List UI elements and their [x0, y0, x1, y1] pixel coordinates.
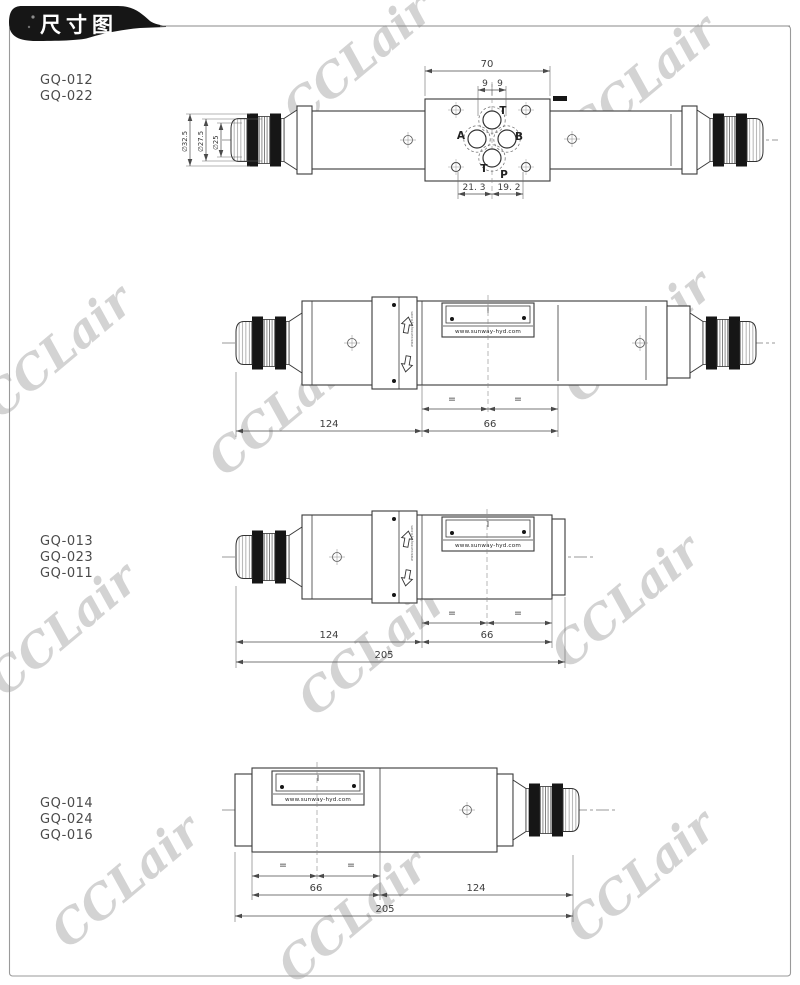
- dim-66: 66: [484, 419, 497, 430]
- dim-dia-32-5: ∅32.5: [181, 131, 189, 152]
- end-cap-right: [667, 306, 690, 378]
- adjust-knob-right: [690, 313, 756, 373]
- equal-mark: =: [279, 860, 287, 871]
- catalog-page: CCLair CCLair CCLair CCLair CCLair CCLai…: [0, 0, 800, 985]
- dim-205: 205: [374, 650, 393, 661]
- dim-dia-25: ∅25: [212, 135, 220, 150]
- nameplate-url: www.sunway-hyd.com: [285, 797, 351, 803]
- port-label-T2: T: [480, 163, 488, 175]
- model-label: GQ-013: [40, 534, 93, 549]
- equal-mark: =: [448, 394, 456, 405]
- banner-noise: [31, 15, 34, 18]
- dim-124: 124: [319, 419, 338, 430]
- dim-124: 124: [319, 630, 338, 641]
- port-label-A: A: [457, 130, 466, 142]
- dim-9-right: 9: [497, 79, 503, 89]
- dim-19-2: 19. 2: [498, 183, 521, 193]
- rivet: [392, 517, 396, 521]
- model-label: GQ-012: [40, 73, 93, 88]
- dim-70: 70: [481, 59, 494, 70]
- rivet: [392, 303, 396, 307]
- flow-plate-text: www.sunway-hyd.com: [410, 311, 414, 347]
- adjust-knob-left: [236, 313, 302, 373]
- end-cap-right: [497, 774, 513, 846]
- rivet: [450, 317, 454, 321]
- dim-124: 124: [466, 883, 485, 894]
- rivet: [522, 316, 526, 320]
- end-step-left: [297, 106, 312, 174]
- equal-mark: =: [514, 608, 522, 619]
- end-cap-left: [235, 774, 252, 846]
- port-label-P: P: [500, 169, 508, 181]
- dim-9-left: 9: [482, 79, 488, 89]
- nameplate-url: www.sunway-hyd.com: [455, 543, 521, 549]
- page-title: 尺寸图: [40, 13, 118, 37]
- dim-66: 66: [481, 630, 494, 641]
- dim-21-3: 21. 3: [463, 183, 486, 193]
- model-label: GQ-024: [40, 812, 93, 827]
- adjust-knob-left: [236, 527, 302, 587]
- end-cap-right: [552, 519, 565, 595]
- banner-noise: [28, 26, 30, 28]
- rivet: [522, 530, 526, 534]
- dim-dia-27-5: ∅27.5: [197, 131, 205, 152]
- rivet: [280, 785, 284, 789]
- model-label: GQ-022: [40, 89, 93, 104]
- model-label: GQ-023: [40, 550, 93, 565]
- rivet: [352, 784, 356, 788]
- model-label: GQ-014: [40, 796, 93, 811]
- port-label-B: B: [515, 131, 523, 143]
- dim-205: 205: [375, 904, 394, 915]
- rivet: [392, 379, 396, 383]
- end-step-right: [682, 106, 697, 174]
- flow-plate-text: www.sunway-hyd.com: [410, 525, 414, 561]
- equal-mark: =: [514, 394, 522, 405]
- adjust-knob-right: [697, 110, 763, 170]
- model-label: GQ-011: [40, 566, 93, 581]
- equal-mark: =: [448, 608, 456, 619]
- equal-mark: =: [347, 860, 355, 871]
- rivet: [450, 531, 454, 535]
- adjust-knob-right: [513, 780, 579, 840]
- model-label: GQ-016: [40, 828, 93, 843]
- locating-tab: [553, 96, 567, 101]
- dimension-drawing-canvas: CCLair CCLair CCLair CCLair CCLair CCLai…: [0, 0, 800, 985]
- dim-66: 66: [310, 883, 323, 894]
- rivet: [392, 593, 396, 597]
